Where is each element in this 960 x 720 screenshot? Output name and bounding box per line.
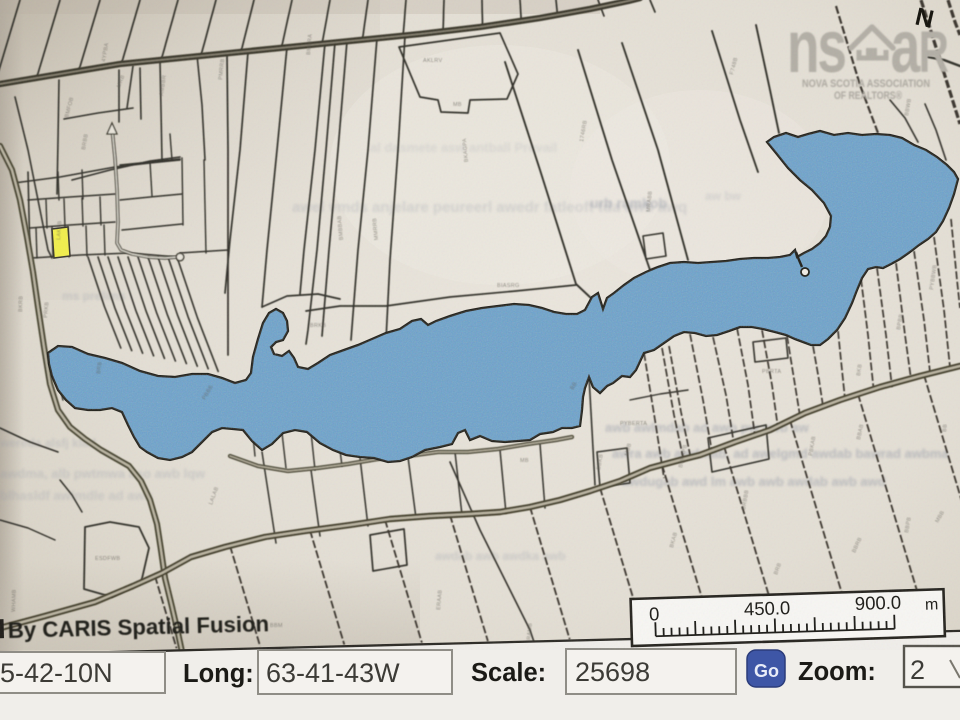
- svg-text:Scale:: Scale:: [471, 659, 546, 687]
- svg-text:25698: 25698: [575, 657, 650, 687]
- svg-text:Long:: Long:: [183, 660, 254, 688]
- svg-text:2: 2: [910, 655, 925, 685]
- svg-text:Zoom:: Zoom:: [798, 658, 876, 686]
- svg-text:63-41-43W: 63-41-43W: [266, 658, 400, 688]
- svg-text:5-42-10N: 5-42-10N: [0, 658, 113, 688]
- svg-text:Go: Go: [754, 661, 779, 681]
